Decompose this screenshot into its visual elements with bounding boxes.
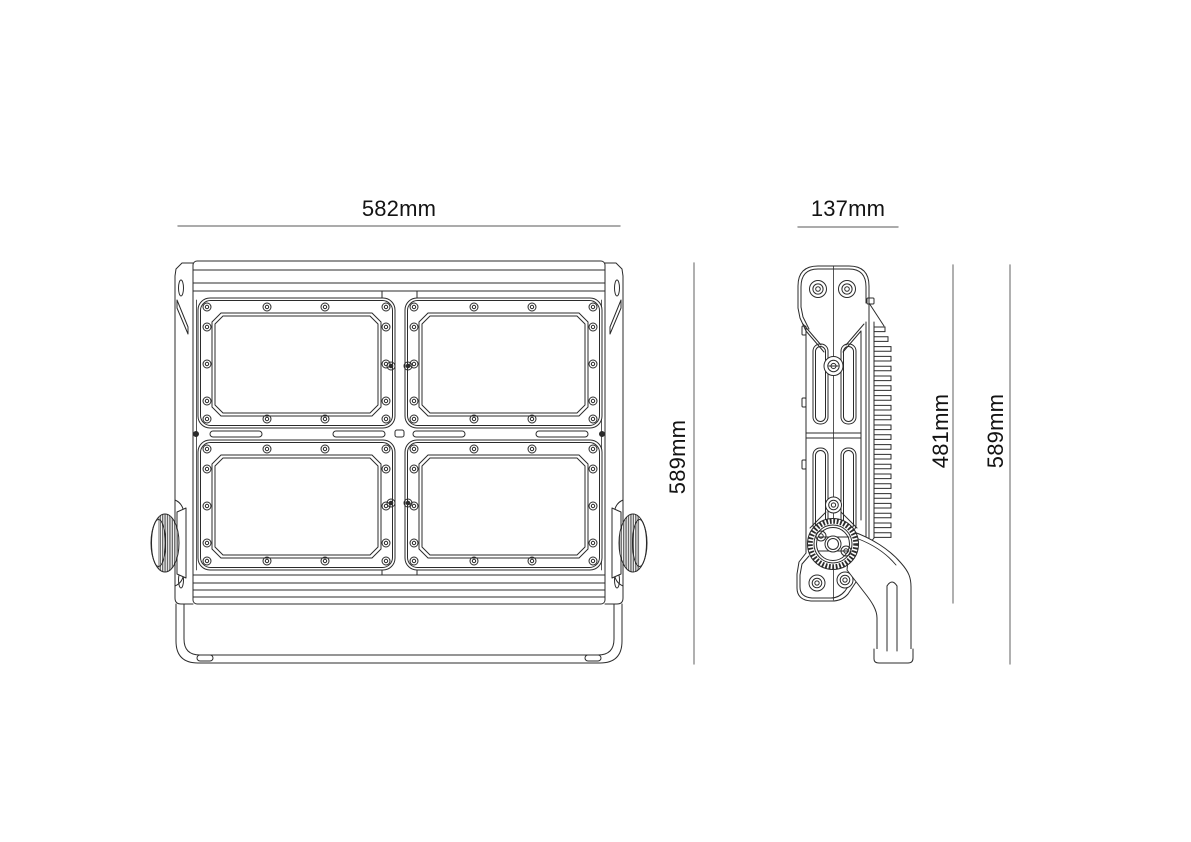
front-view-drawing [151,261,647,663]
front-width-dimension-label: 582mm [339,196,459,222]
side-overall-height-dimension-label: 589mm [983,371,1009,491]
side-view-drawing [797,266,913,663]
side-body-height-dimension-label: 481mm [928,371,954,491]
front-height-dimension-label: 589mm [665,397,691,517]
floodlight-technical-drawing [0,0,1191,842]
side-depth-dimension-label: 137mm [788,196,908,222]
technical-drawing-page: 582mm 137mm 589mm 481mm 589mm [0,0,1191,842]
